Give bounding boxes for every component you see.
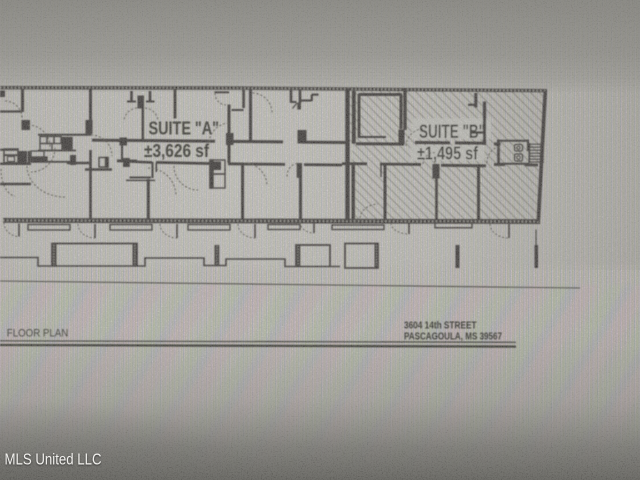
svg-text:MLS United LLC: MLS United LLC bbox=[5, 452, 102, 469]
